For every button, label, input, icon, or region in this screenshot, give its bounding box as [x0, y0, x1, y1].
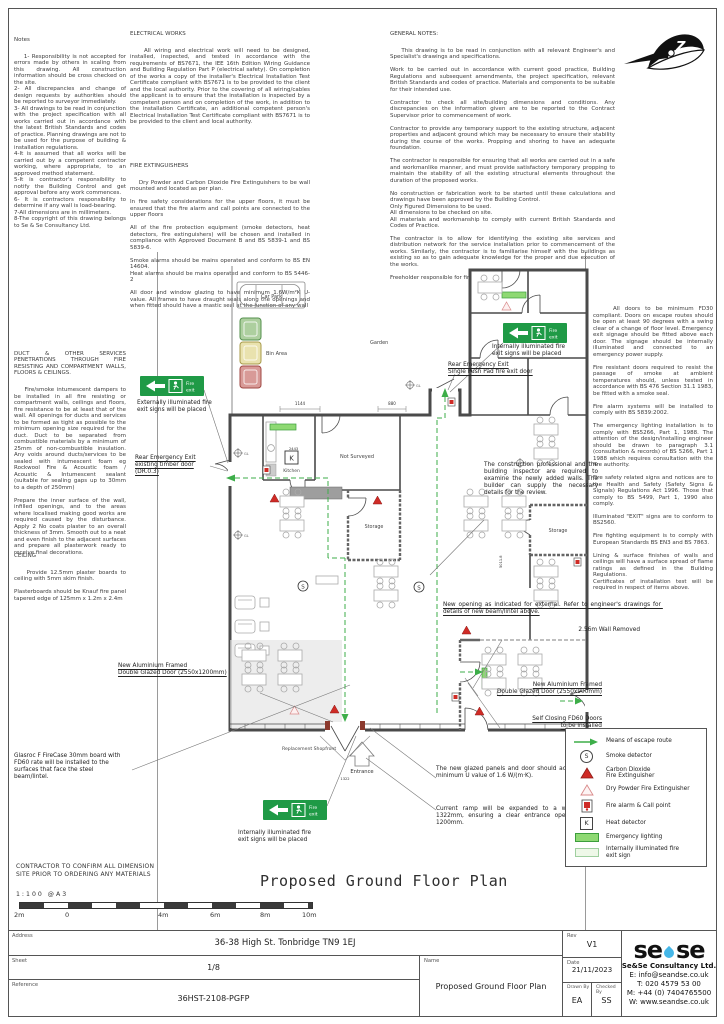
storage-label-2: Storage	[549, 528, 568, 534]
scale-ratio: 1:100 @A3	[16, 891, 68, 898]
fire-exit-sign-external: Fire exit	[140, 376, 204, 396]
notes-body: 1- Responsibility is not accepted for er…	[14, 54, 128, 229]
address-cell: Address 36-38 High St. Tonbridge TN9 1EJ	[8, 931, 563, 956]
reference-cell: Reference 36HST-2108-PGFP	[8, 980, 420, 1017]
svg-text:K: K	[289, 455, 294, 463]
bin-area: Bin Area	[240, 318, 287, 388]
svg-text:Fire: Fire	[186, 381, 194, 387]
svg-text:GL: GL	[244, 534, 249, 538]
scale-tick: 6m	[210, 911, 220, 919]
kitchen-label: Kitchen	[283, 468, 300, 474]
annotation-rear-timber-door: Rear Emergency Exit existing timber door…	[135, 455, 231, 476]
fire-ext-title: FIRE EXTINGUISHERS	[130, 163, 310, 169]
drawing-title: Proposed Ground Floor Plan	[260, 872, 508, 890]
address-label: Address	[12, 933, 33, 939]
emergency-lighting-icon	[573, 833, 600, 842]
svg-text:5011.8: 5011.8	[499, 555, 503, 568]
shopfront-label: Replacement Shopfront	[282, 746, 336, 752]
drawing-sheet: Notes 1- Responsibility is not accepted …	[0, 0, 724, 1024]
legend-heat-detector: K Heat detector	[573, 817, 699, 830]
fire-exit-sign-top: Fire exit	[503, 323, 567, 343]
title-block: Address 36-38 High St. Tonbridge TN9 1EJ…	[8, 930, 716, 1017]
legend-escape-route: Means of escape route	[573, 737, 699, 747]
legend-emergency-lighting: Emergency lighting	[573, 833, 699, 842]
svg-text:exit: exit	[186, 388, 195, 394]
company-mobile: M: +44 (0) 7404765500	[627, 989, 711, 998]
svg-text:GL: GL	[416, 384, 421, 388]
annotation-door-right: New Aluminium Framed Double Glazed Door …	[476, 682, 602, 696]
svg-text:GL: GL	[244, 452, 249, 456]
sheet-value: 1/8	[8, 956, 419, 979]
annotation-external-sign: Externally illuminated fire exit signs w…	[137, 400, 223, 414]
company-name: Se&Se Consultancy Ltd.	[622, 962, 716, 971]
annotation-glasroc: Glasroc F FireCase 30mm board with FD60 …	[14, 753, 126, 781]
legend-box: Means of escape route S Smoke detector C…	[565, 728, 707, 867]
north-arrow-compass-icon: Z	[618, 14, 714, 94]
door-notes-body: All doors to be minimum FD30 compliant. …	[593, 306, 715, 591]
sheet-label: Sheet	[12, 958, 27, 964]
drawn-cell: Drawn By EA	[563, 983, 592, 1017]
company-tel: T: 020 4579 53 00	[637, 980, 701, 989]
not-surveyed-label: Not Surveyed	[340, 454, 374, 460]
escape-route-icon	[573, 737, 600, 747]
annotation-construction: The construction professional and the bu…	[484, 462, 598, 497]
electrical-works-block: ELECTRICAL WORKS All wiring and electric…	[130, 18, 310, 132]
notes-title: Notes	[14, 37, 126, 43]
duct-title: DUCT & OTHER SERVICES PENETRATIONS THROU…	[14, 351, 126, 377]
fire-alarm-icon	[573, 799, 600, 813]
annotation-internal-sign-top: Internally illuminated fire exit signs w…	[492, 344, 584, 358]
name-cell: Name Proposed Ground Floor Plan	[420, 956, 563, 1017]
co2-extinguisher-icon	[573, 767, 600, 779]
annotation-internal-sign-bottom: Internally illuminated fire exit signs w…	[238, 830, 328, 844]
svg-text:exit: exit	[549, 335, 558, 341]
rev-cell: Rev V1	[563, 931, 622, 958]
contractor-confirm-note: CONTRACTOR TO CONFIRM ALL DIMENSION SITE…	[16, 863, 154, 879]
ceiling-body: Provide 12.5mm plaster boards to ceiling…	[14, 570, 128, 602]
legend-co2-extinguisher: Carbon Dioxide Fire Extinguisher	[573, 767, 699, 781]
door-notes-block: All doors to be minimum FD30 compliant. …	[593, 300, 713, 598]
reference-label: Reference	[12, 982, 38, 988]
svg-text:2443: 2443	[289, 447, 298, 451]
sheet-cell: Sheet 1/8	[8, 956, 420, 980]
car-park: Car Park	[237, 282, 305, 308]
svg-text:1144: 1144	[295, 401, 306, 406]
name-value: Proposed Ground Floor Plan	[420, 956, 562, 1017]
drawn-label: Drawn By	[567, 985, 589, 990]
entrance-ramp: Entrance	[320, 736, 374, 775]
duct-notes-block: DUCT & OTHER SERVICES PENETRATIONS THROU…	[14, 338, 126, 562]
notes-block: Notes 1- Responsibility is not accepted …	[14, 24, 126, 236]
svg-text:exit: exit	[309, 812, 318, 818]
general-body: This drawing is to be read in conjunctio…	[390, 48, 617, 281]
legend-dry-powder-extinguisher: Dry Powder Fire Extinguisher	[573, 784, 699, 796]
logo-droplet-icon	[662, 946, 676, 960]
storage-label-1: Storage	[365, 524, 384, 530]
checked-label: Checked By	[596, 985, 621, 995]
compass-letter: Z	[675, 40, 686, 55]
reference-value: 36HST-2108-PGFP	[8, 980, 419, 1017]
scale-tick: 2m	[14, 911, 24, 919]
company-email: E: info@seandse.co.uk	[629, 971, 708, 980]
svg-text:S: S	[301, 585, 305, 591]
car-park-label: Car Park	[261, 294, 282, 300]
heat-detector-symbol: K Kitchen	[283, 451, 300, 474]
logo-cell: se se Se&Se Consultancy Ltd. E: info@sea…	[622, 931, 716, 1017]
annotation-wall-removed: 2.56m Wall Removed	[540, 627, 640, 634]
scale-bar	[19, 902, 313, 909]
scale-tick: 8m	[260, 911, 270, 919]
svg-text:Fire: Fire	[549, 328, 557, 334]
svg-text:880: 880	[388, 401, 396, 406]
svg-text:S: S	[417, 586, 421, 592]
date-label: Date	[567, 960, 579, 966]
name-label: Name	[424, 958, 439, 964]
logo-text-2: se	[676, 941, 705, 960]
ceiling-title: CEILING	[14, 553, 126, 559]
scale-tick: 10m	[302, 911, 317, 919]
address-value: 36-38 High St. Tonbridge TN9 1EJ	[8, 931, 562, 955]
annotation-door-left: New Aluminium Framed Double Glazed Door …	[118, 663, 303, 677]
legend-internally-illuminated-sign: Internally illuminated fire exit sign	[573, 846, 699, 860]
duct-body: Fire/smoke intumescent dampers to be ins…	[14, 387, 128, 555]
company-web: W: www.seandse.co.uk	[629, 998, 709, 1007]
electrical-body: All wiring and electrical work will need…	[130, 48, 312, 125]
annotation-rear-push-pad: Rear Emergency Exit Single Push Pad fire…	[448, 362, 584, 376]
illuminated-sign-icon	[573, 848, 600, 857]
garden-label: Garden	[370, 340, 388, 346]
company-logo: se se	[633, 941, 704, 960]
heat-detector-icon: K	[573, 817, 600, 830]
general-notes-block: GENERAL NOTES: This drawing is to be rea…	[390, 18, 615, 288]
electrical-title: ELECTRICAL WORKS	[130, 31, 310, 37]
annotation-new-opening: New opening as indicated for external. R…	[443, 602, 661, 616]
general-title: GENERAL NOTES:	[390, 31, 615, 37]
logo-text-1: se	[633, 941, 662, 960]
scale-tick: 0	[65, 911, 69, 919]
entrance-label: Entrance	[350, 769, 373, 775]
dry-powder-extinguisher-icon	[573, 784, 600, 796]
ceiling-notes-block: CEILING Provide 12.5mm plaster boards to…	[14, 540, 126, 609]
legend-smoke-detector: S Smoke detector	[573, 750, 699, 763]
scale-tick: 4m	[158, 911, 168, 919]
smoke-detector-icon: S	[573, 750, 600, 763]
date-cell: Date 21/11/2023	[563, 958, 622, 983]
checked-cell: Checked By SS	[592, 983, 622, 1017]
svg-text:Fire: Fire	[309, 805, 317, 811]
fire-exit-sign-bottom: Fire exit	[263, 800, 327, 820]
rev-label: Rev	[567, 933, 577, 939]
legend-fire-alarm: Fire alarm & Call point	[573, 799, 699, 813]
svg-text:1322: 1322	[340, 777, 349, 781]
bin-area-label: Bin Area	[266, 351, 287, 357]
